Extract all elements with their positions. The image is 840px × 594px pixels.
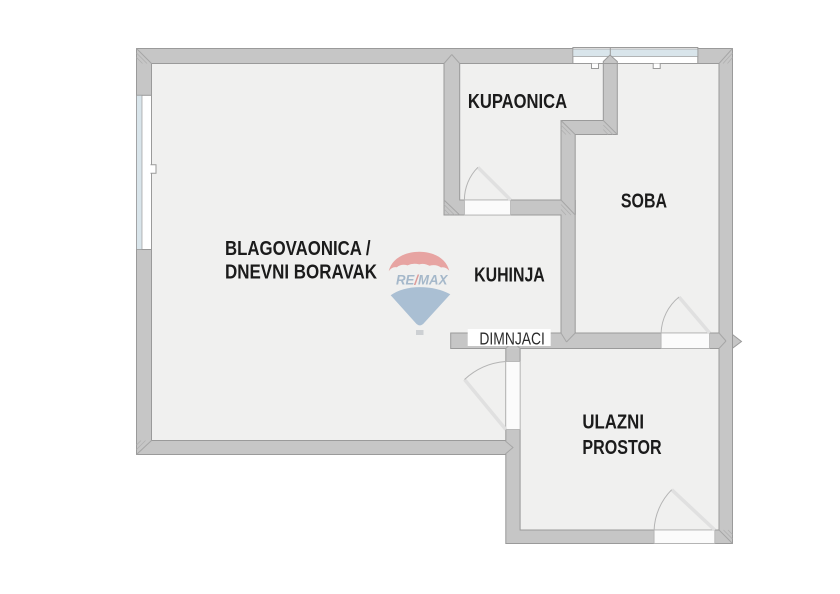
svg-text:PROSTOR: PROSTOR bbox=[582, 437, 662, 459]
svg-text:DIMNJACI: DIMNJACI bbox=[479, 328, 545, 348]
svg-text:BLAGOVAONICA /: BLAGOVAONICA / bbox=[225, 237, 371, 260]
svg-text:KUPAONICA: KUPAONICA bbox=[468, 91, 567, 113]
svg-text:ULAZNI: ULAZNI bbox=[582, 412, 644, 434]
svg-text:RE/MAX: RE/MAX bbox=[396, 273, 448, 288]
svg-text:KUHINJA: KUHINJA bbox=[474, 264, 545, 286]
svg-text:SOBA: SOBA bbox=[621, 191, 667, 213]
svg-text:DNEVNI BORAVAK: DNEVNI BORAVAK bbox=[225, 261, 377, 284]
